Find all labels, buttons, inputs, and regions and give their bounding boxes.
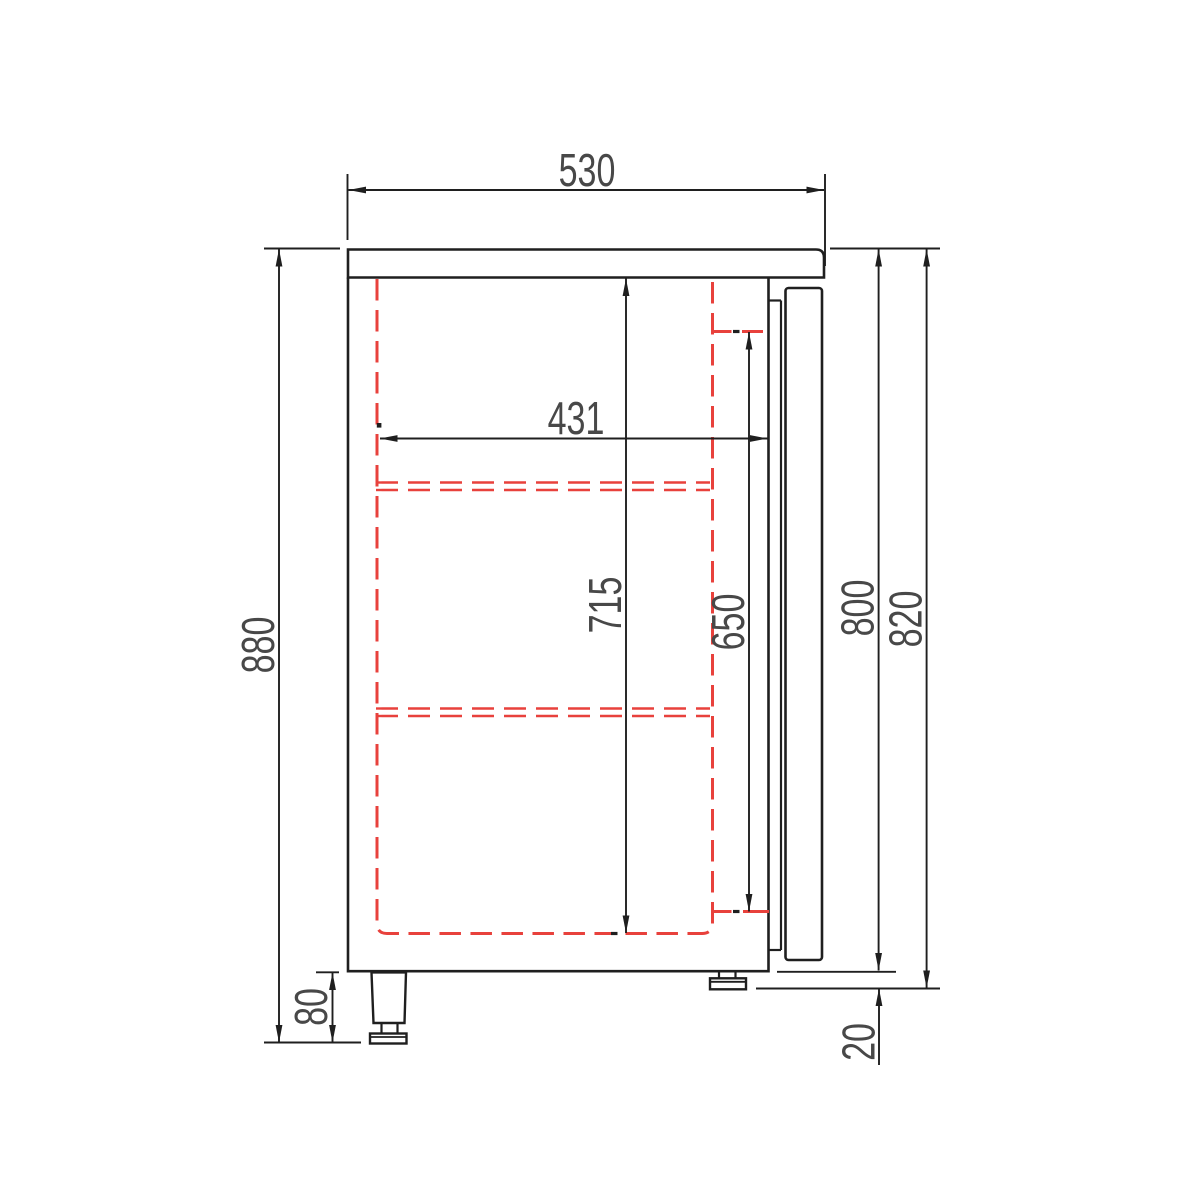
svg-text:80: 80 (285, 988, 337, 1026)
svg-text:880: 880 (232, 617, 284, 674)
svg-text:530: 530 (559, 144, 616, 196)
svg-text:431: 431 (548, 392, 605, 444)
svg-text:715: 715 (579, 577, 631, 634)
svg-text:650: 650 (702, 594, 754, 651)
svg-text:820: 820 (879, 591, 931, 648)
svg-text:20: 20 (832, 1023, 884, 1061)
svg-text:800: 800 (831, 580, 883, 637)
